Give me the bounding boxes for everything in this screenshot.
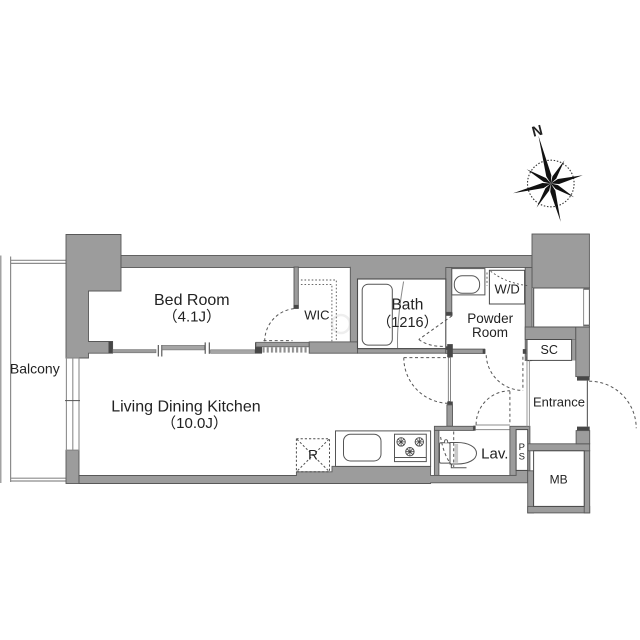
svg-text:Lav.: Lav. — [481, 446, 508, 463]
svg-text:SC: SC — [541, 343, 558, 357]
svg-text:WIC: WIC — [304, 307, 329, 322]
svg-text:Bath: Bath — [391, 297, 423, 314]
svg-text:Bed Room: Bed Room — [154, 292, 230, 309]
svg-text:Powder: Powder — [467, 311, 513, 326]
svg-text:（1216）: （1216） — [377, 314, 438, 331]
svg-text:S: S — [519, 452, 525, 463]
svg-text:W/D: W/D — [495, 281, 520, 296]
svg-text:MB: MB — [550, 472, 568, 486]
svg-text:Room: Room — [472, 325, 508, 340]
svg-text:（10.0J）: （10.0J） — [161, 415, 228, 432]
svg-text:Entrance: Entrance — [533, 395, 585, 410]
svg-text:Living Dining Kitchen: Living Dining Kitchen — [111, 399, 260, 416]
svg-text:（4.1J）: （4.1J） — [163, 309, 221, 326]
svg-text:R: R — [308, 448, 318, 463]
svg-text:Balcony: Balcony — [10, 361, 60, 377]
